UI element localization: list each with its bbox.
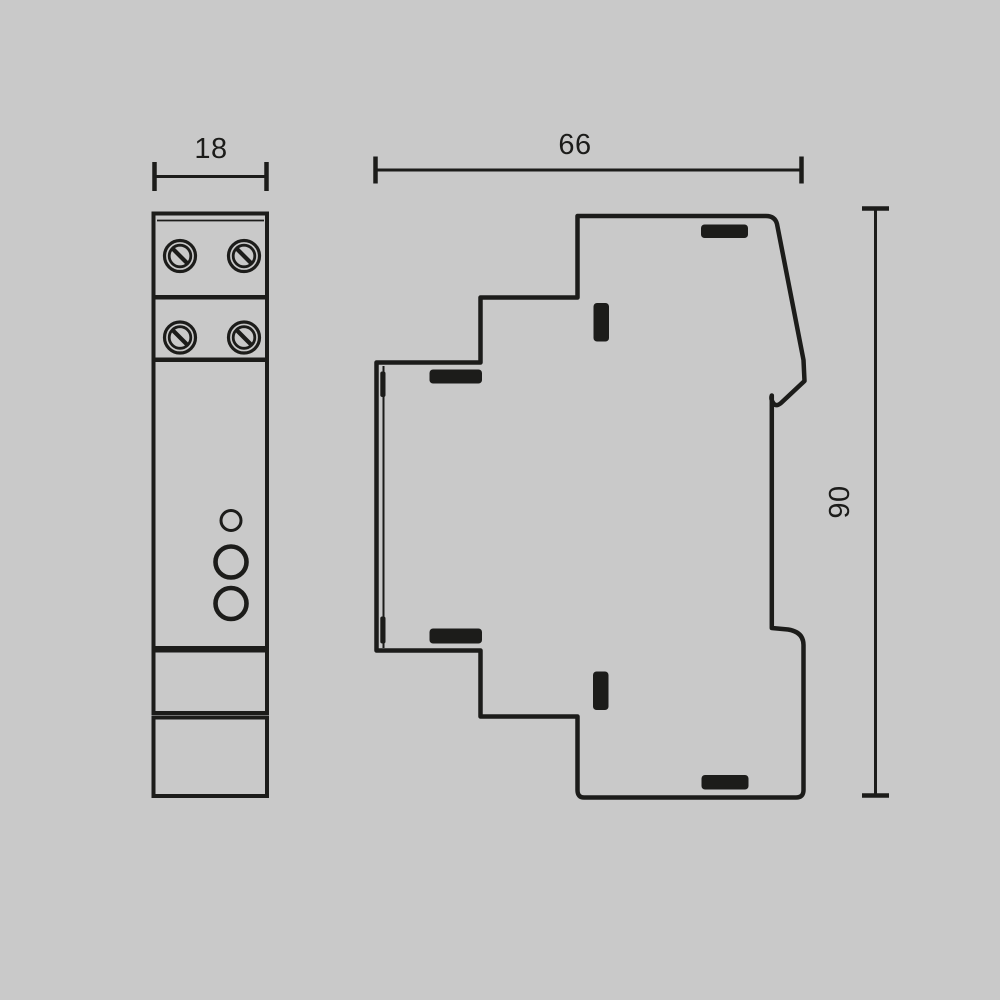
vent-slot-left-top xyxy=(430,370,483,384)
dim-label-front-width: 18 xyxy=(194,133,227,165)
terminal-screw xyxy=(229,241,260,272)
side-view xyxy=(377,216,805,798)
vent-slot-left-bottom xyxy=(430,629,483,644)
vent-slot-top xyxy=(701,225,748,239)
front-bottom-section xyxy=(154,718,268,797)
front-main-body xyxy=(154,360,268,648)
vent-slot-upper-vertical xyxy=(594,303,610,342)
terminal-screw xyxy=(165,322,196,353)
dimension-side-height: 90 xyxy=(824,208,889,796)
screw-slot xyxy=(236,330,251,345)
terminal-screw xyxy=(165,241,196,272)
technical-drawing-page: 18 66 90 xyxy=(0,0,1000,1000)
control-button-lower xyxy=(216,588,247,619)
control-button-upper xyxy=(216,547,247,578)
screw-slot xyxy=(172,248,187,263)
dim-label-side-height: 90 xyxy=(824,485,856,518)
terminal-screw xyxy=(229,322,260,353)
vent-slot-bottom xyxy=(702,775,749,790)
vent-slot-lower-vertical xyxy=(593,672,609,711)
dimension-side-depth: 66 xyxy=(376,129,802,184)
side-view-outline xyxy=(377,216,805,798)
front-lower-section xyxy=(154,651,268,714)
screw-slot xyxy=(172,330,187,345)
front-view xyxy=(154,214,268,797)
din-module-dimension-drawing: 18 66 90 xyxy=(0,0,1000,1000)
indicator-led xyxy=(221,511,241,531)
dim-label-side-depth: 66 xyxy=(558,129,591,161)
din-rail-tick-bottom xyxy=(380,617,385,644)
din-rail-tick-top xyxy=(380,372,385,398)
screw-slot xyxy=(236,248,251,263)
dimension-front-width: 18 xyxy=(154,133,267,191)
vent-slots xyxy=(430,225,749,790)
